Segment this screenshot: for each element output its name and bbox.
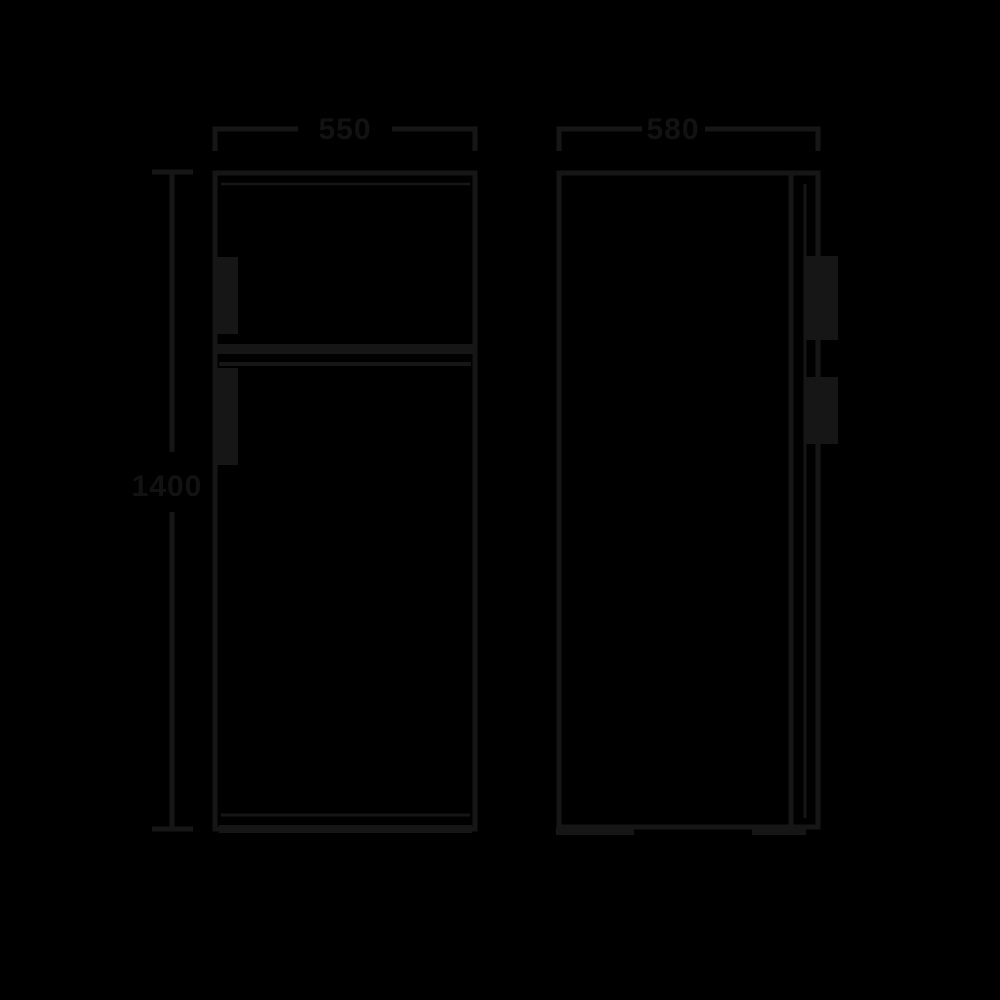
refrigerator-dimension-diagram: 550 580 1400 bbox=[0, 0, 1000, 1000]
depth-dimension: 580 bbox=[559, 113, 818, 151]
side-fridge-handle bbox=[806, 377, 838, 444]
depth-dimension-label: 580 bbox=[646, 113, 699, 146]
width-dimension-line-left bbox=[215, 129, 298, 151]
front-fridge-handle bbox=[217, 368, 238, 465]
side-view bbox=[556, 173, 838, 831]
width-dimension: 550 bbox=[215, 113, 475, 151]
side-freezer-handle bbox=[806, 256, 838, 340]
height-dimension: 1400 bbox=[132, 172, 203, 829]
depth-dimension-line-right bbox=[705, 129, 818, 151]
side-cabinet-outline bbox=[559, 173, 818, 827]
front-view bbox=[215, 173, 475, 829]
diagram-canvas: 550 580 1400 bbox=[0, 0, 1000, 1000]
width-dimension-line-right bbox=[392, 129, 475, 151]
front-cabinet-outline bbox=[215, 173, 475, 829]
front-freezer-handle bbox=[217, 257, 238, 334]
height-dimension-label: 1400 bbox=[132, 470, 203, 503]
depth-dimension-line-left bbox=[559, 129, 642, 151]
width-dimension-label: 550 bbox=[318, 113, 371, 146]
